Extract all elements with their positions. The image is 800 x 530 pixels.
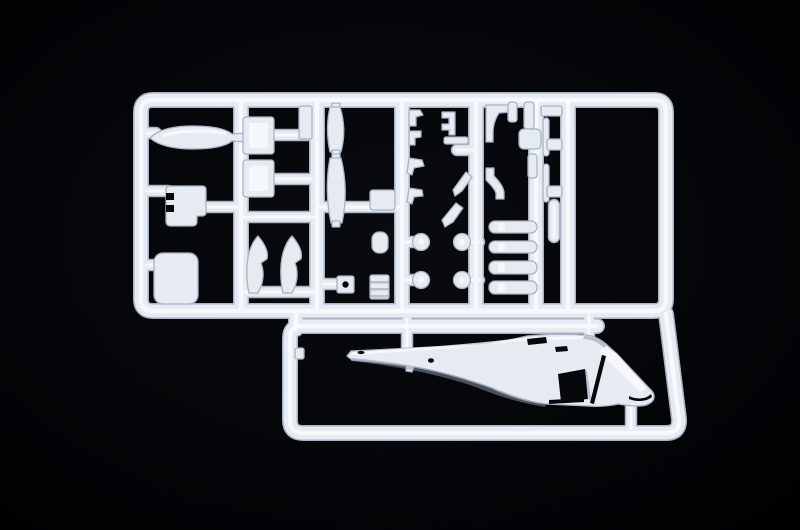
- part-floor-panel: [154, 253, 198, 304]
- part-knob: [519, 129, 541, 149]
- highlight-wheel-hub-1: [418, 239, 424, 245]
- cutout-panel-notch-2: [166, 205, 174, 212]
- highlight-tube-collar-1: [498, 223, 505, 231]
- cutout-panel-notch-1: [166, 193, 174, 200]
- highlight-door-lower-panel: [249, 166, 268, 191]
- part-ladder-pad-1: [547, 139, 562, 150]
- part-blister-window-lower: [327, 158, 345, 223]
- cutout-plate-hole: [342, 281, 348, 287]
- highlight-wheel-hub-4: [459, 277, 465, 283]
- part-skid-tube-3: [489, 261, 537, 274]
- highlight-tube-collar-3: [498, 263, 505, 272]
- part-blister-lower-tab-bottom: [332, 221, 340, 227]
- part-ladder-rung: [541, 106, 562, 116]
- highlight-wheel-hub-2: [459, 239, 465, 245]
- part-gate-remnant: [295, 348, 304, 359]
- cutout-boom-nick: [358, 351, 365, 354]
- part-blister-window-upper: [328, 107, 344, 152]
- shade-rib-seam-3: [370, 295, 389, 298]
- highlight-door-upper-panel: [249, 123, 268, 148]
- part-skid-tube-1: [489, 221, 537, 233]
- cutout-roof-slot: [555, 346, 568, 352]
- part-rod-a: [508, 102, 517, 122]
- photo-canvas: [0, 0, 800, 530]
- cutout-boom-hole: [428, 358, 434, 363]
- part-skid-tube-2: [489, 241, 537, 253]
- part-ladder-pad-2: [547, 186, 562, 197]
- part-small-cylinder: [372, 232, 388, 253]
- part-rod-b: [524, 102, 534, 129]
- shade-rib-seam-1: [370, 281, 389, 284]
- shade-rib-seam-2: [370, 288, 389, 291]
- part-side-plate: [299, 106, 312, 139]
- highlight-tube-collar-2: [498, 243, 505, 251]
- part-skid-tube-4: [489, 281, 537, 294]
- cutout-door-window: [558, 369, 588, 402]
- part-gear-block: [370, 190, 395, 210]
- part-mid-rod: [528, 154, 537, 178]
- part-bracket-foot: [444, 137, 468, 144]
- highlight-tube-collar-4: [498, 283, 505, 292]
- highlight-wheel-hub-3: [418, 277, 424, 283]
